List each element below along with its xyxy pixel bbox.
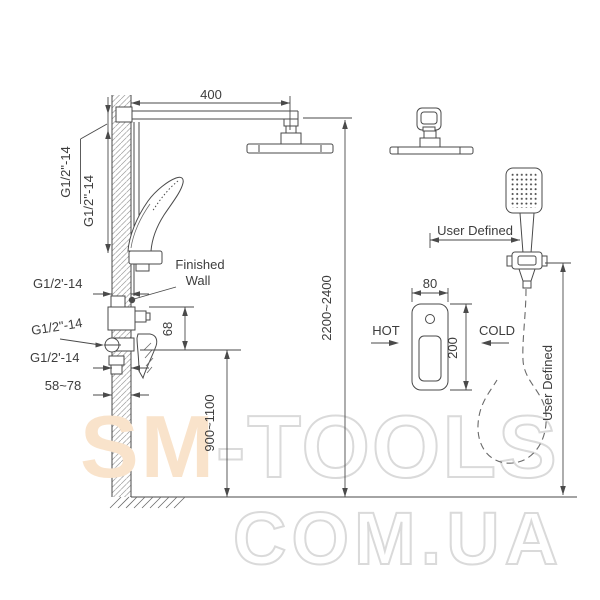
dimension-user-defined-horizontal: User Defined xyxy=(430,223,520,248)
watermark-brand-left: SM xyxy=(80,397,216,496)
dimension-inlet-mid: G1/2"-14 xyxy=(30,315,104,347)
watermark-brand-right: -TOOLS xyxy=(216,397,559,496)
overhead-shower-front-view xyxy=(390,108,473,154)
watermark: SM-TOOLS COM.UA xyxy=(80,397,563,580)
thread-bar-label: G1/2''-14 xyxy=(81,175,96,227)
watermark-domain: COM.UA xyxy=(233,497,563,580)
hot-indicator: HOT xyxy=(371,323,400,346)
dimension-box-height: 200 xyxy=(445,304,472,390)
cold-label: COLD xyxy=(479,323,515,338)
user-defined-vertical-label: User Defined xyxy=(540,345,555,421)
hot-label: HOT xyxy=(372,323,400,338)
dim-arm-length-label: 400 xyxy=(200,87,222,102)
head-height-label: 2200~2400 xyxy=(319,275,334,340)
inlet-bottom-label: G1/2'-14 xyxy=(30,350,79,365)
spout-drop-label: 68 xyxy=(160,322,175,336)
inlet-top-label: G1/2'-14 xyxy=(33,276,82,291)
shower-installation-diagram: SM-TOOLS COM.UA xyxy=(0,0,600,600)
embed-depth-label: 58~78 xyxy=(45,378,82,393)
inlet-mid-label: G1/2"-14 xyxy=(30,315,83,338)
box-height-label: 200 xyxy=(445,337,460,359)
dimension-arm-length: 400 xyxy=(131,87,290,130)
dimension-embed-depth: 58~78 xyxy=(45,378,149,398)
mixer-box-front-view xyxy=(412,304,448,390)
overhead-shower-side-view xyxy=(116,107,333,153)
finished-wall-label-1: Finished xyxy=(175,257,224,272)
box-width-label: 80 xyxy=(423,276,437,291)
dimension-inlet-top: G1/2'-14 xyxy=(33,276,149,297)
user-defined-horizontal-label: User Defined xyxy=(437,223,513,238)
finished-wall-label-2: Wall xyxy=(186,273,211,288)
hand-shower-side-view xyxy=(128,177,183,251)
valve-height-label: 900~1100 xyxy=(202,394,217,451)
watermark-brand: SM-TOOLS xyxy=(80,397,559,496)
dimension-thread-callouts: G1/2"-14 G1/2''-14 xyxy=(58,97,111,253)
cold-indicator: COLD xyxy=(479,323,515,346)
dimension-box-width: 80 xyxy=(412,276,448,302)
diagram-canvas: SM-TOOLS COM.UA xyxy=(0,0,600,600)
thread-arm-label: G1/2"-14 xyxy=(58,146,73,198)
